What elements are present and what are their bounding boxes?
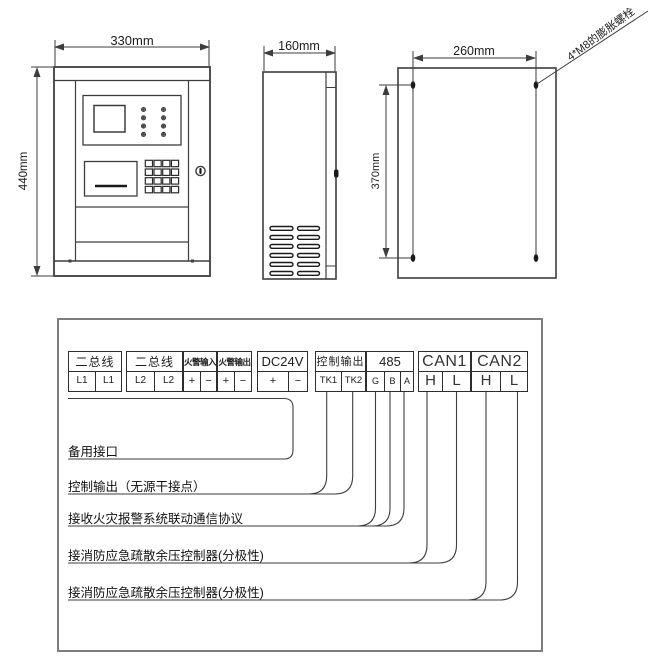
terminal-cell: G bbox=[367, 372, 384, 391]
terminal-cell: + bbox=[258, 372, 288, 391]
terminal-cell: L2 bbox=[154, 372, 182, 391]
lock-icon bbox=[196, 166, 205, 175]
terminal-group-label: CAN2 bbox=[472, 352, 527, 372]
terminal-cell: + bbox=[218, 372, 234, 391]
terminal-group-control-output: 控制输出 TK1 TK2 bbox=[315, 351, 366, 392]
terminal-group-label: DC24V bbox=[258, 352, 307, 372]
front-height-dimension: 440mm bbox=[18, 143, 32, 199]
terminal-cell: − bbox=[234, 372, 251, 391]
callout-fire-alarm-protocol: 接收火灾报警系统联动通信协议 bbox=[68, 508, 243, 527]
front-width-dimension: 330mm bbox=[104, 33, 160, 48]
back-view bbox=[398, 11, 648, 278]
printer-panel bbox=[85, 162, 138, 197]
door-handle bbox=[334, 170, 339, 178]
terminal-cell: A bbox=[400, 372, 413, 391]
terminal-cell: H bbox=[472, 372, 500, 391]
foot-right bbox=[191, 260, 194, 263]
display-panel bbox=[83, 96, 181, 146]
foot-left bbox=[69, 260, 72, 263]
terminal-cell: L1 bbox=[95, 372, 121, 391]
terminal-group-label: 二总线 bbox=[69, 352, 121, 372]
front-view bbox=[54, 67, 210, 276]
keypad bbox=[145, 160, 178, 192]
terminal-group-fire-input: 火警输入 + − bbox=[183, 351, 217, 392]
terminal-group-485: 485 G B A bbox=[366, 351, 414, 392]
terminal-cell: TK1 bbox=[316, 372, 341, 391]
terminal-cell: TK2 bbox=[341, 372, 365, 391]
terminal-group-bus-2: 二总线 L2 L2 bbox=[126, 351, 183, 392]
mount-width-dimension: 260mm bbox=[446, 44, 502, 58]
callout-pressure-controller-1: 接消防应急疏散余压控制器(分极性) bbox=[68, 545, 264, 564]
terminal-cell: L1 bbox=[69, 372, 95, 391]
terminal-group-dc24v: DC24V + − bbox=[257, 351, 308, 392]
expansion-bolt-note: 4*M8的膨胀螺栓 bbox=[546, 0, 652, 76]
terminal-group-fire-output: 火警输出 + − bbox=[217, 351, 252, 392]
vent-slots bbox=[270, 227, 320, 276]
terminal-cell: − bbox=[200, 372, 216, 391]
terminal-cell: H bbox=[419, 372, 442, 391]
terminal-group-label: CAN1 bbox=[419, 352, 470, 372]
led-indicators bbox=[142, 108, 166, 137]
terminal-group-can2: CAN2 H L bbox=[471, 351, 528, 392]
dimension-lines bbox=[31, 40, 536, 276]
mount-height-dimension: 370mm bbox=[370, 143, 384, 199]
terminal-group-label: 火警输出 bbox=[218, 352, 251, 372]
terminal-cell: L bbox=[442, 372, 470, 391]
callout-control-output: 控制输出（无源干接点） bbox=[68, 476, 206, 495]
callout-pressure-controller-2: 接消防应急疏散余压控制器(分极性) bbox=[68, 582, 264, 601]
terminal-group-can1: CAN1 H L bbox=[418, 351, 471, 392]
callout-spare-interface: 备用接口 bbox=[68, 441, 118, 460]
terminal-group-label: 火警输入 bbox=[184, 352, 216, 372]
terminal-group-label: 485 bbox=[367, 352, 413, 372]
side-depth-dimension: 160mm bbox=[271, 39, 327, 53]
terminal-cell: B bbox=[384, 372, 400, 391]
terminal-group-label: 控制输出 bbox=[316, 352, 365, 372]
terminal-cell: L bbox=[500, 372, 527, 391]
terminal-cell: − bbox=[288, 372, 307, 391]
terminal-cell: L2 bbox=[127, 372, 154, 391]
side-view bbox=[263, 72, 339, 279]
terminal-group-label: 二总线 bbox=[127, 352, 182, 372]
terminal-cell: + bbox=[184, 372, 200, 391]
lcd-screen bbox=[94, 106, 125, 133]
mounting-holes bbox=[411, 81, 539, 262]
terminal-group-bus-1: 二总线 L1 L1 bbox=[68, 351, 122, 392]
wiring-diagram-page: 330mm 440mm 160mm 370mm 260mm 4*M8的膨胀螺栓 … bbox=[0, 0, 652, 666]
